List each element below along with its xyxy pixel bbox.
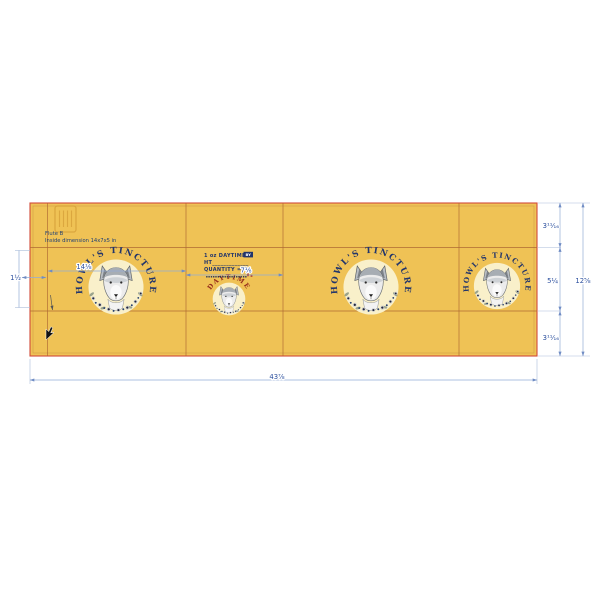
board-note-flute: Flute B: [45, 231, 64, 237]
dim-overall-width: 43⅞: [269, 373, 285, 381]
dim-glue-flap-width: 1½: [10, 274, 21, 282]
dim-panel-height: 5¼: [547, 277, 558, 285]
dim-bottom-flap-height: 3¹¹⁄₁₆: [543, 334, 560, 342]
dim-overall-height: 12⅝: [575, 277, 591, 285]
dim-panel2-width: 7⅛: [241, 267, 252, 275]
panel2-line1: 1 oz DAYTIME: [204, 253, 246, 259]
dieline-drawing-canvas: HOWL'S TINCTURE Flute B Inside dimension…: [0, 0, 600, 600]
panel2-line1-tag: BY: [245, 252, 251, 257]
panel2-line2: HT_____________: [204, 260, 249, 266]
dieline-svg: HOWL'S TINCTURE Flute B Inside dimension…: [0, 0, 600, 600]
dim-top-flap-height: 3¹¹⁄₁₆: [543, 222, 560, 230]
dim-panel1-width: 14⅛: [76, 263, 92, 271]
board-note-inside-dimension: Inside dimension 14x7x5 in: [45, 238, 116, 244]
